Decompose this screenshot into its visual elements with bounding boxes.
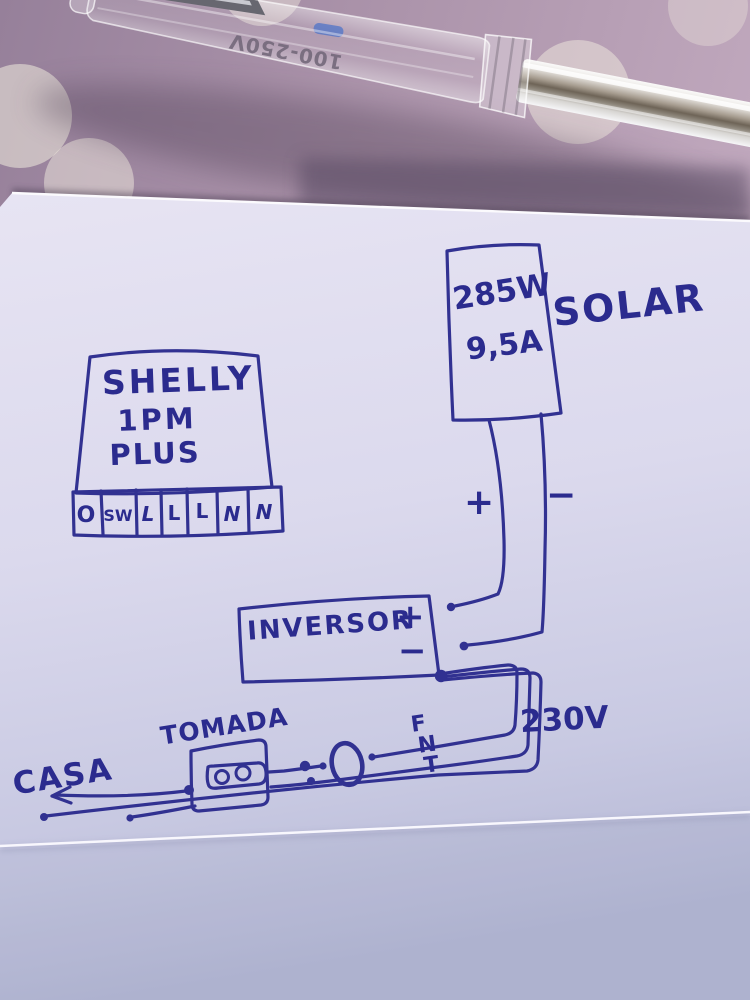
- photo-canvas: 100-250V: [0, 0, 750, 1000]
- solar-plus-sign: +: [464, 482, 494, 523]
- junction-dot: [300, 761, 310, 771]
- terminal-n1: N: [224, 502, 241, 526]
- ac-voltage-label: 230V: [519, 699, 609, 740]
- junction-dot: [126, 814, 133, 821]
- shelly-variant: PLUS: [109, 435, 201, 472]
- terminal-l1: L: [142, 502, 155, 526]
- terminal-o: O: [77, 503, 96, 528]
- photo-scene: 100-250V: [0, 0, 750, 1000]
- inverter-minus-sign: −: [398, 631, 427, 671]
- junction-dot: [460, 642, 469, 651]
- shelly-title: SHELLY: [101, 358, 255, 402]
- junction-dot: [447, 603, 455, 611]
- terminal-l3: L: [196, 499, 209, 523]
- junction-dot: [435, 670, 447, 682]
- terminal-n2: N: [256, 500, 273, 524]
- solar-minus-sign: −: [546, 475, 576, 516]
- terminal-sw: SW: [103, 506, 133, 525]
- junction-dot: [307, 777, 315, 785]
- shelly-model: 1PM: [117, 401, 197, 438]
- junction-dot: [368, 753, 375, 760]
- junction-dot: [184, 785, 194, 795]
- terminal-l2: L: [168, 501, 181, 525]
- junction-dot: [319, 762, 326, 769]
- junction-dot: [40, 813, 48, 821]
